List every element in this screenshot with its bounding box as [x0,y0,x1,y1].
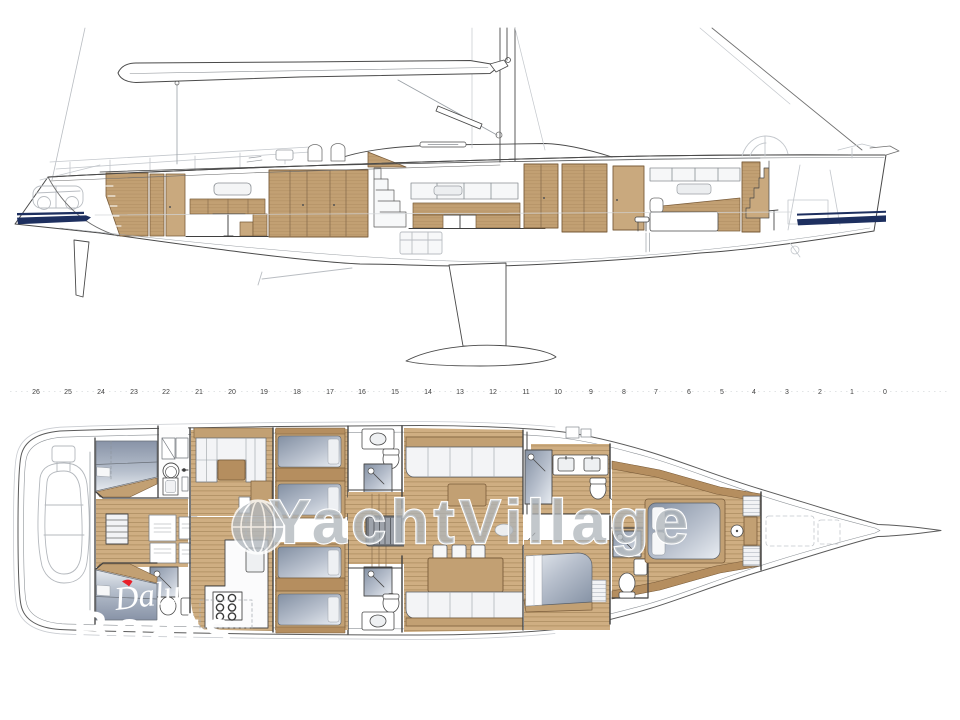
svg-text:YachtVillage: YachtVillage [269,488,693,557]
svg-text:10: 10 [554,389,562,396]
svg-text:12: 12 [489,389,497,396]
svg-text:23: 23 [130,389,138,396]
svg-text:25: 25 [64,389,72,396]
svg-text:9: 9 [589,389,593,396]
svg-text:1: 1 [850,389,854,396]
svg-text:21: 21 [195,389,203,396]
svg-text:3: 3 [785,389,789,396]
svg-text:22: 22 [162,389,170,396]
svg-text:19: 19 [260,389,268,396]
svg-text:13: 13 [456,389,464,396]
svg-text:7: 7 [654,389,658,396]
svg-text:18: 18 [293,389,301,396]
svg-text:16: 16 [358,389,366,396]
svg-text:8: 8 [622,389,626,396]
svg-text:26: 26 [32,389,40,396]
svg-text:14: 14 [424,389,432,396]
svg-text:17: 17 [326,389,334,396]
svg-text:6: 6 [687,389,691,396]
svg-text:2: 2 [818,389,822,396]
svg-text:0: 0 [883,389,887,396]
svg-text:4: 4 [752,389,756,396]
svg-text:15: 15 [391,389,399,396]
svg-text:5: 5 [720,389,724,396]
svg-text:20: 20 [228,389,236,396]
svg-text:11: 11 [522,389,529,396]
svg-text:Boats: Boats [73,601,237,657]
svg-text:24: 24 [97,389,105,396]
